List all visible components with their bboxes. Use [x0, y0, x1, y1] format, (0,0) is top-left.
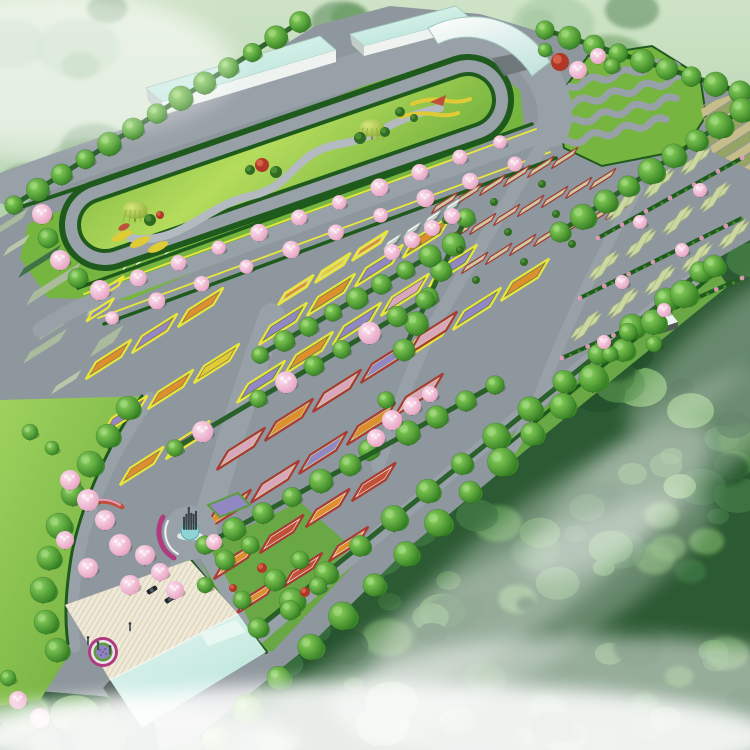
- plaza-medallion: [88, 637, 118, 667]
- landscape-plan-rendering: [0, 0, 750, 750]
- site-plan-svg: [0, 0, 750, 750]
